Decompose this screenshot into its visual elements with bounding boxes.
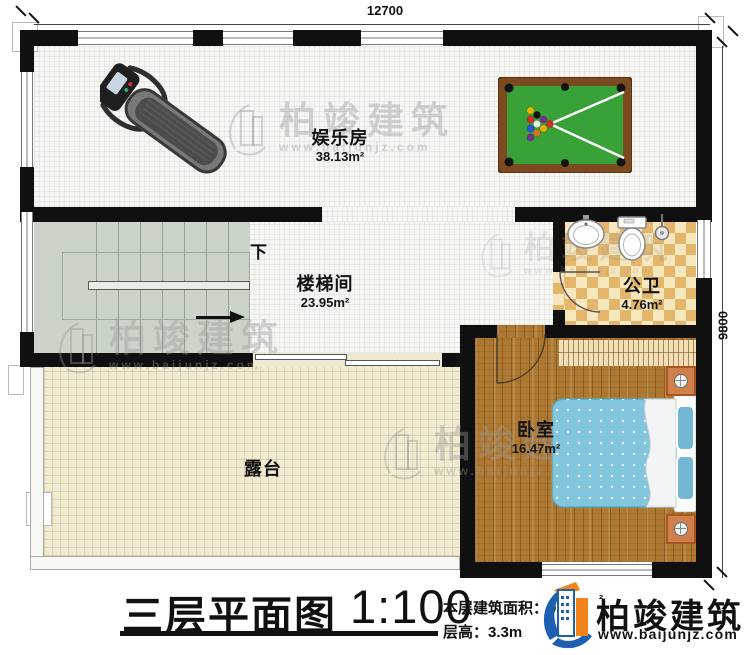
room-label-stairwell: 楼梯间 23.95m² bbox=[255, 274, 395, 310]
break-slash bbox=[15, 5, 26, 16]
right-dimension-value: 9800 bbox=[716, 304, 731, 348]
stair-arrow-head bbox=[230, 311, 245, 323]
bedroom-door-arc-icon bbox=[495, 333, 549, 387]
floor-height-line: 层高：3.3m bbox=[443, 621, 522, 642]
window bbox=[542, 564, 652, 576]
treadmill-icon bbox=[100, 50, 250, 175]
toilet-icon bbox=[618, 217, 646, 260]
window bbox=[223, 31, 293, 45]
room-area: 16.47m² bbox=[466, 441, 606, 457]
break-slash bbox=[727, 25, 738, 36]
wall bbox=[20, 167, 34, 212]
room-name: 公卫 bbox=[572, 276, 712, 297]
floor-height-value: 3.3m bbox=[488, 624, 522, 641]
wall bbox=[440, 353, 475, 367]
floor-area-label: 本层建筑面积： bbox=[443, 600, 548, 617]
bathroom-fixtures bbox=[558, 214, 698, 276]
room-name: 露台 bbox=[193, 459, 333, 480]
wall bbox=[545, 325, 712, 338]
lamp-icon bbox=[674, 374, 688, 388]
sliding-door-icon bbox=[253, 353, 442, 367]
wall bbox=[20, 353, 253, 367]
sink-icon bbox=[568, 215, 604, 248]
wall bbox=[20, 207, 322, 222]
sliding-door-panel bbox=[255, 354, 347, 360]
wall bbox=[460, 562, 542, 578]
sliding-door-panel bbox=[345, 360, 440, 366]
wall bbox=[293, 30, 361, 46]
closet-icon bbox=[558, 340, 696, 366]
break-symbol bbox=[8, 365, 24, 395]
room-name: 楼梯间 bbox=[255, 274, 395, 295]
floor-plan-canvas: 12700 9800 下 柏竣建筑www.baijunjz.com 柏竣建筑ww… bbox=[0, 0, 750, 655]
top-dimension-line bbox=[34, 24, 710, 25]
wall bbox=[460, 325, 497, 338]
window bbox=[78, 31, 193, 45]
wall bbox=[652, 562, 712, 578]
room-label-bathroom: 公卫 4.76m² bbox=[572, 276, 712, 312]
top-dimension-value: 12700 bbox=[335, 3, 435, 18]
shower-icon bbox=[656, 214, 669, 240]
wall bbox=[696, 30, 712, 220]
room-name: 卧室 bbox=[466, 420, 606, 441]
lamp-icon bbox=[674, 522, 688, 536]
terrace-parapet-bottom bbox=[30, 556, 460, 570]
stair-railing bbox=[88, 281, 250, 290]
room-area: 4.76m² bbox=[572, 297, 712, 313]
window bbox=[697, 220, 711, 278]
window bbox=[21, 72, 33, 167]
window bbox=[361, 31, 443, 45]
room-area: 38.13m² bbox=[270, 149, 410, 165]
wall bbox=[20, 30, 34, 72]
staircase bbox=[34, 222, 250, 353]
window bbox=[21, 212, 33, 332]
nightstand-icon bbox=[666, 514, 696, 544]
floor-height-label: 层高： bbox=[443, 624, 488, 641]
stair-arrow-tail bbox=[196, 316, 230, 319]
room-label-bedroom: 卧室 16.47m² bbox=[466, 420, 606, 456]
room-area: 23.95m² bbox=[255, 295, 395, 311]
closet-rod bbox=[558, 352, 696, 353]
room-label-entertainment: 娱乐房 38.13m² bbox=[270, 128, 410, 164]
wall bbox=[193, 30, 223, 46]
brand-url: www.baijunjz.com bbox=[598, 626, 738, 642]
wall bbox=[696, 278, 712, 578]
stair-direction-label: 下 bbox=[250, 238, 267, 263]
hall-floor-patch bbox=[322, 207, 515, 222]
terrace-parapet-left bbox=[30, 367, 44, 570]
wall bbox=[460, 338, 475, 578]
brand-logo-icon bbox=[536, 578, 596, 650]
nightstand-icon bbox=[666, 366, 696, 396]
floor-area-superscript: ² bbox=[599, 592, 603, 606]
wall bbox=[443, 30, 712, 46]
pool-table-icon bbox=[498, 77, 632, 173]
room-name: 娱乐房 bbox=[270, 128, 410, 149]
room-label-terrace: 露台 bbox=[193, 459, 333, 480]
